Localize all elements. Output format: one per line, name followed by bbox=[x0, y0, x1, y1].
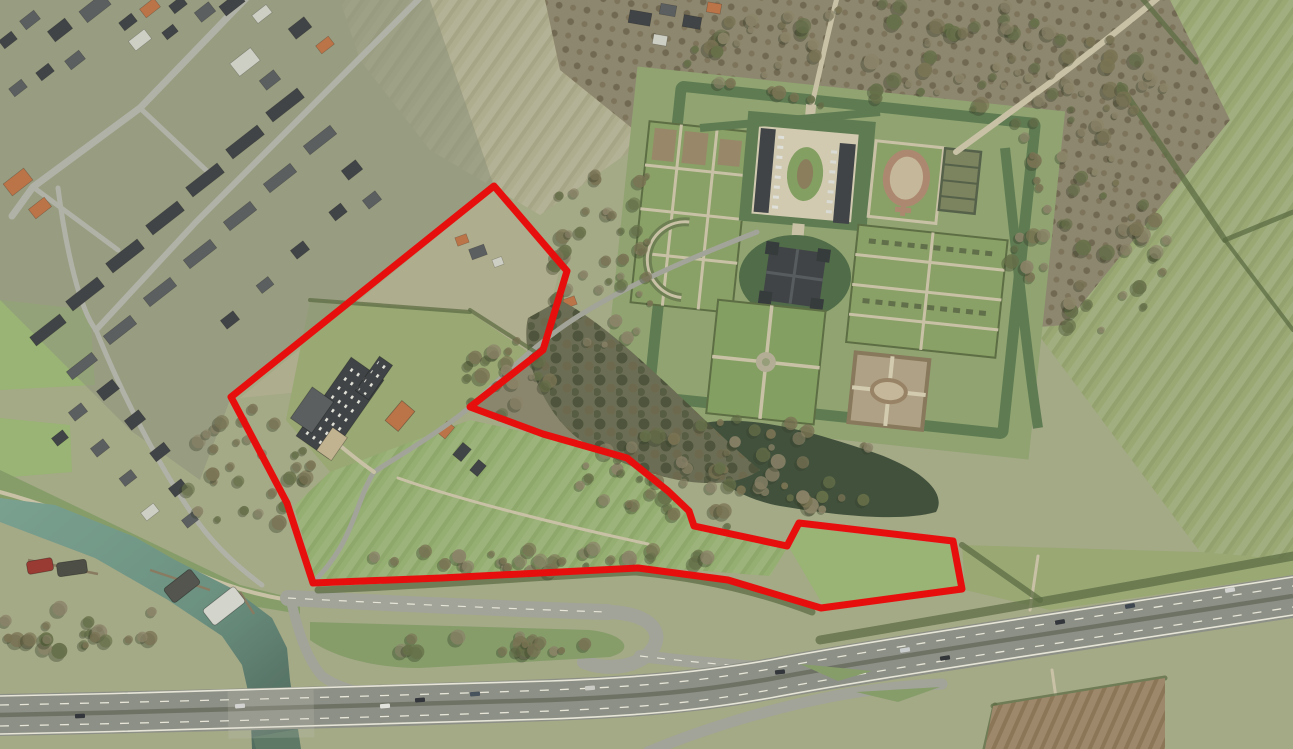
photo-tint bbox=[0, 0, 1293, 749]
aerial-orthophoto bbox=[0, 0, 1293, 749]
aerial-screenshot bbox=[0, 0, 1293, 749]
